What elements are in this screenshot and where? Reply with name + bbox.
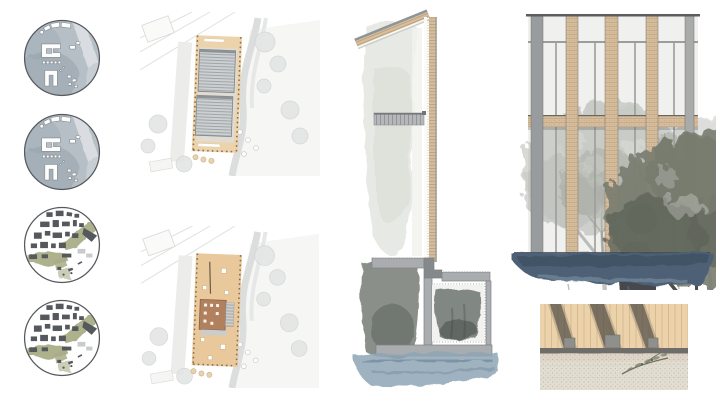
interior-wash <box>364 22 422 256</box>
elevation-ground-wash <box>512 252 713 290</box>
mid-slab <box>374 111 426 125</box>
site-watercolor-circle-icon <box>23 19 101 97</box>
elevation-drawing <box>508 14 716 290</box>
brick-wall <box>424 17 437 262</box>
circle-diagram-site-1 <box>23 19 101 97</box>
circle-diagram-map-1 <box>23 206 101 284</box>
site-plan-roof-drawing <box>140 12 320 176</box>
figure-ground-map-icon <box>23 206 101 284</box>
building-floor-plan <box>191 253 242 378</box>
roof-edge-line <box>526 14 700 17</box>
plan-detail-drawing <box>538 300 692 392</box>
circle-diagram-map-2 <box>23 299 101 377</box>
wall-section-drawing <box>352 8 500 394</box>
plan-detail <box>538 300 692 392</box>
basement <box>431 284 485 342</box>
elevation <box>508 14 716 290</box>
ground-water-wash <box>354 352 498 386</box>
site-plan-floor-drawing <box>140 226 320 388</box>
circle-diagram-site-2 <box>23 113 101 191</box>
site-plan-roof <box>140 12 320 176</box>
wall-cut-line <box>540 348 688 354</box>
wall-section <box>352 8 500 394</box>
site-plan-floor <box>140 226 320 388</box>
building-roof-plan <box>191 35 242 164</box>
figure-ground-map-icon <box>23 299 101 377</box>
site-watercolor-circle-icon <box>23 113 101 191</box>
presentation-board <box>0 0 720 405</box>
